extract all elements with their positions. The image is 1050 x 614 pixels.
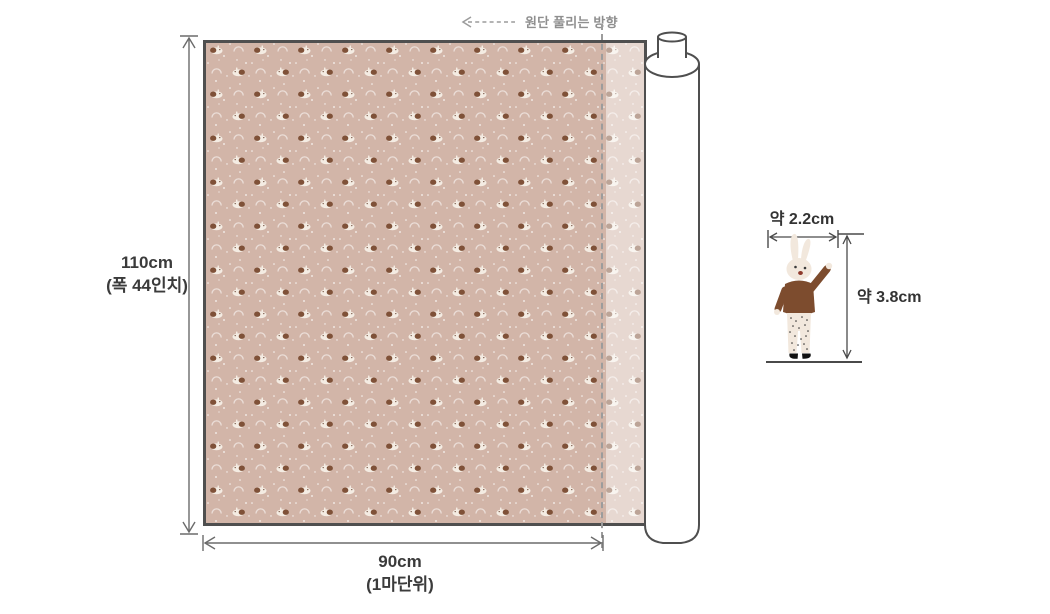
fabric-swatch [203,40,647,526]
width-dimension-label: 90cm [330,550,470,573]
rabbit-mascot-illustration [772,227,836,363]
width-dimension-label-group: 90cm (1마단위) [330,550,470,597]
dashed-arrow-left-icon [458,15,516,29]
motif-ground-line [766,361,862,363]
motif-width-label: 약 2.2cm [762,205,842,229]
unroll-direction-label: 원단 풀리는 방향 [525,12,618,31]
height-dimension-label-group: 110cm (폭 44인치) [92,251,202,298]
selvage-strip [606,43,644,523]
motif-height-label: 약 3.8cm [857,283,922,307]
unroll-direction-indicator: 원단 풀리는 방향 [458,12,618,31]
height-dimension-note: (폭 44인치) [92,274,202,297]
height-dimension-label: 110cm [92,251,202,274]
fabric-roll [643,27,701,551]
fabric-pattern [206,43,644,523]
width-dimension-note: (1마단위) [330,573,470,596]
cut-dashed-line [601,24,603,548]
fabric-size-diagram: 원단 풀리는 방향 [0,0,1050,614]
